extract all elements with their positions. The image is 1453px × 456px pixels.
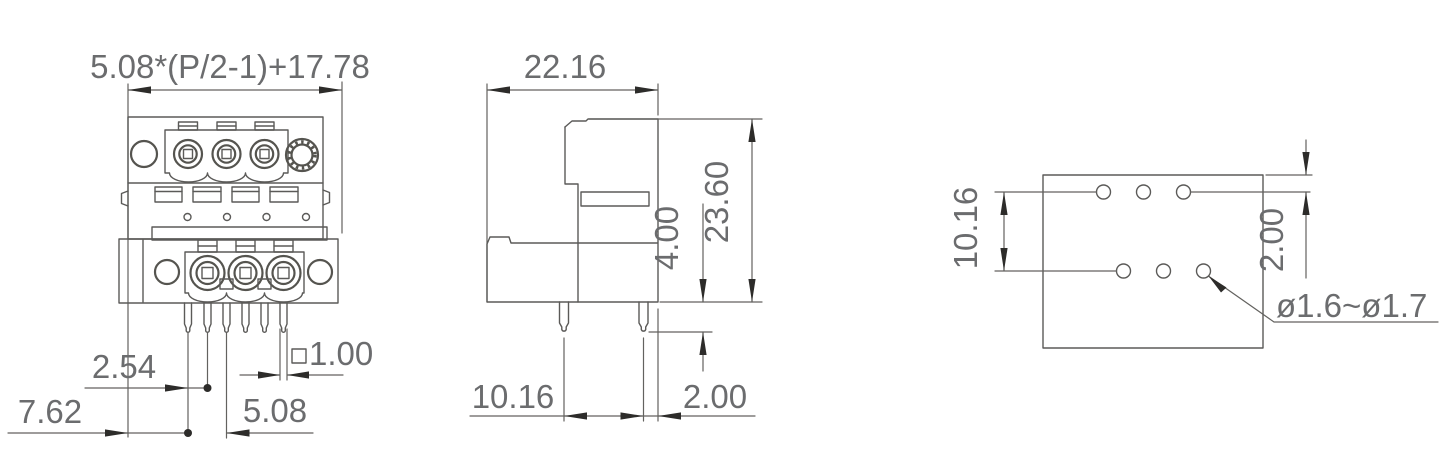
dimension-arrow [1302, 192, 1309, 215]
dimension-arrow [487, 86, 510, 93]
alignment-holes [184, 214, 310, 221]
dimension-arrow [748, 279, 755, 302]
pcb-edge-offset-dimension: 2.00 [1253, 140, 1312, 278]
side-pin-protrusion-label: 4.00 [648, 206, 685, 270]
lower-left-mount-hole [155, 260, 179, 284]
upper-left-mount-hole [131, 141, 157, 167]
dimension-arrow [105, 429, 128, 436]
pcb-layout-view: 10.16 2.00 ø1.6~ø1.7 [947, 140, 1438, 348]
dimension-arrow [635, 86, 658, 93]
dimension-arrow [227, 429, 250, 436]
side-width-dimension: 22.16 [487, 48, 658, 302]
pcb-row-pitch-label: 10.16 [947, 187, 984, 270]
dimension-arrow [1302, 152, 1309, 175]
pcb-outline [1043, 175, 1263, 348]
pcb-drill-holes [1097, 185, 1211, 278]
side-row-pitch-label: 10.16 [472, 378, 555, 415]
upper-right-mount-hole [286, 139, 318, 171]
dimension-arrow [1000, 192, 1007, 215]
front-pin-size-label: 1.00 [309, 335, 373, 372]
lower-right-mount-hole [308, 260, 332, 284]
technical-drawing-page: 5.08*(P/2-1)+17.78 [0, 0, 1453, 456]
front-view: 5.08*(P/2-1)+17.78 [8, 48, 373, 438]
side-width-label: 22.16 [524, 48, 607, 85]
dimension-arrow [258, 371, 280, 378]
square-section-symbol [292, 349, 306, 363]
dimension-arrow [128, 86, 151, 93]
dimension-arrow [748, 119, 755, 142]
dimension-arrow [621, 412, 644, 419]
lower-screw-terminals [191, 256, 301, 290]
front-row-spacing-label: 7.62 [18, 393, 82, 430]
front-pin-pitch-label: 2.54 [92, 348, 156, 385]
side-total-height-label: 23.60 [698, 161, 735, 244]
pcb-hole-diameter-callout: ø1.6~ø1.7 [1209, 276, 1439, 324]
pcb-edge-offset-label: 2.00 [1253, 208, 1290, 272]
dimension-arrow [165, 384, 188, 391]
technical-drawing-canvas: 5.08*(P/2-1)+17.78 [0, 0, 1453, 456]
side-height-dimensions: 4.00 23.60 [589, 119, 762, 371]
front-width-formula-label: 5.08*(P/2-1)+17.78 [90, 48, 370, 85]
front-lower-plug [155, 240, 332, 302]
front-pole-pitch-label: 5.08 [243, 392, 307, 429]
side-view: 22.16 4.00 23.60 [470, 48, 762, 421]
side-latch [581, 192, 649, 206]
front-solder-pins [185, 303, 288, 332]
side-body-profile [487, 119, 658, 302]
upper-plug-tabs [179, 122, 275, 130]
dimension-arrow [287, 371, 309, 378]
dimension-arrow [658, 412, 681, 419]
front-center-bar [152, 227, 327, 240]
dimension-arrow [699, 279, 706, 302]
dimension-arrow [319, 86, 342, 93]
reference-dot [184, 429, 192, 437]
dimension-arrow [564, 412, 587, 419]
front-middle-section [155, 187, 310, 221]
front-upper-plug [131, 122, 318, 182]
left-latch-ear [122, 191, 129, 206]
side-bottom-dimensions: 10.16 2.00 [470, 309, 755, 421]
leader-arrow [1209, 276, 1227, 293]
right-latch-ear [323, 190, 330, 205]
reference-dot [204, 384, 212, 392]
side-solder-pins [560, 302, 649, 331]
dimension-arrow [699, 332, 706, 355]
dimension-arrow [1000, 248, 1007, 271]
front-bottom-dimensions: 2.54 7.62 5.08 1.00 [8, 329, 373, 438]
side-pin-edge-offset-label: 2.00 [683, 378, 747, 415]
lower-plug-tabs [198, 240, 293, 252]
upper-screw-terminals [174, 140, 279, 168]
pcb-hole-diameter-label: ø1.6~ø1.7 [1276, 287, 1427, 324]
